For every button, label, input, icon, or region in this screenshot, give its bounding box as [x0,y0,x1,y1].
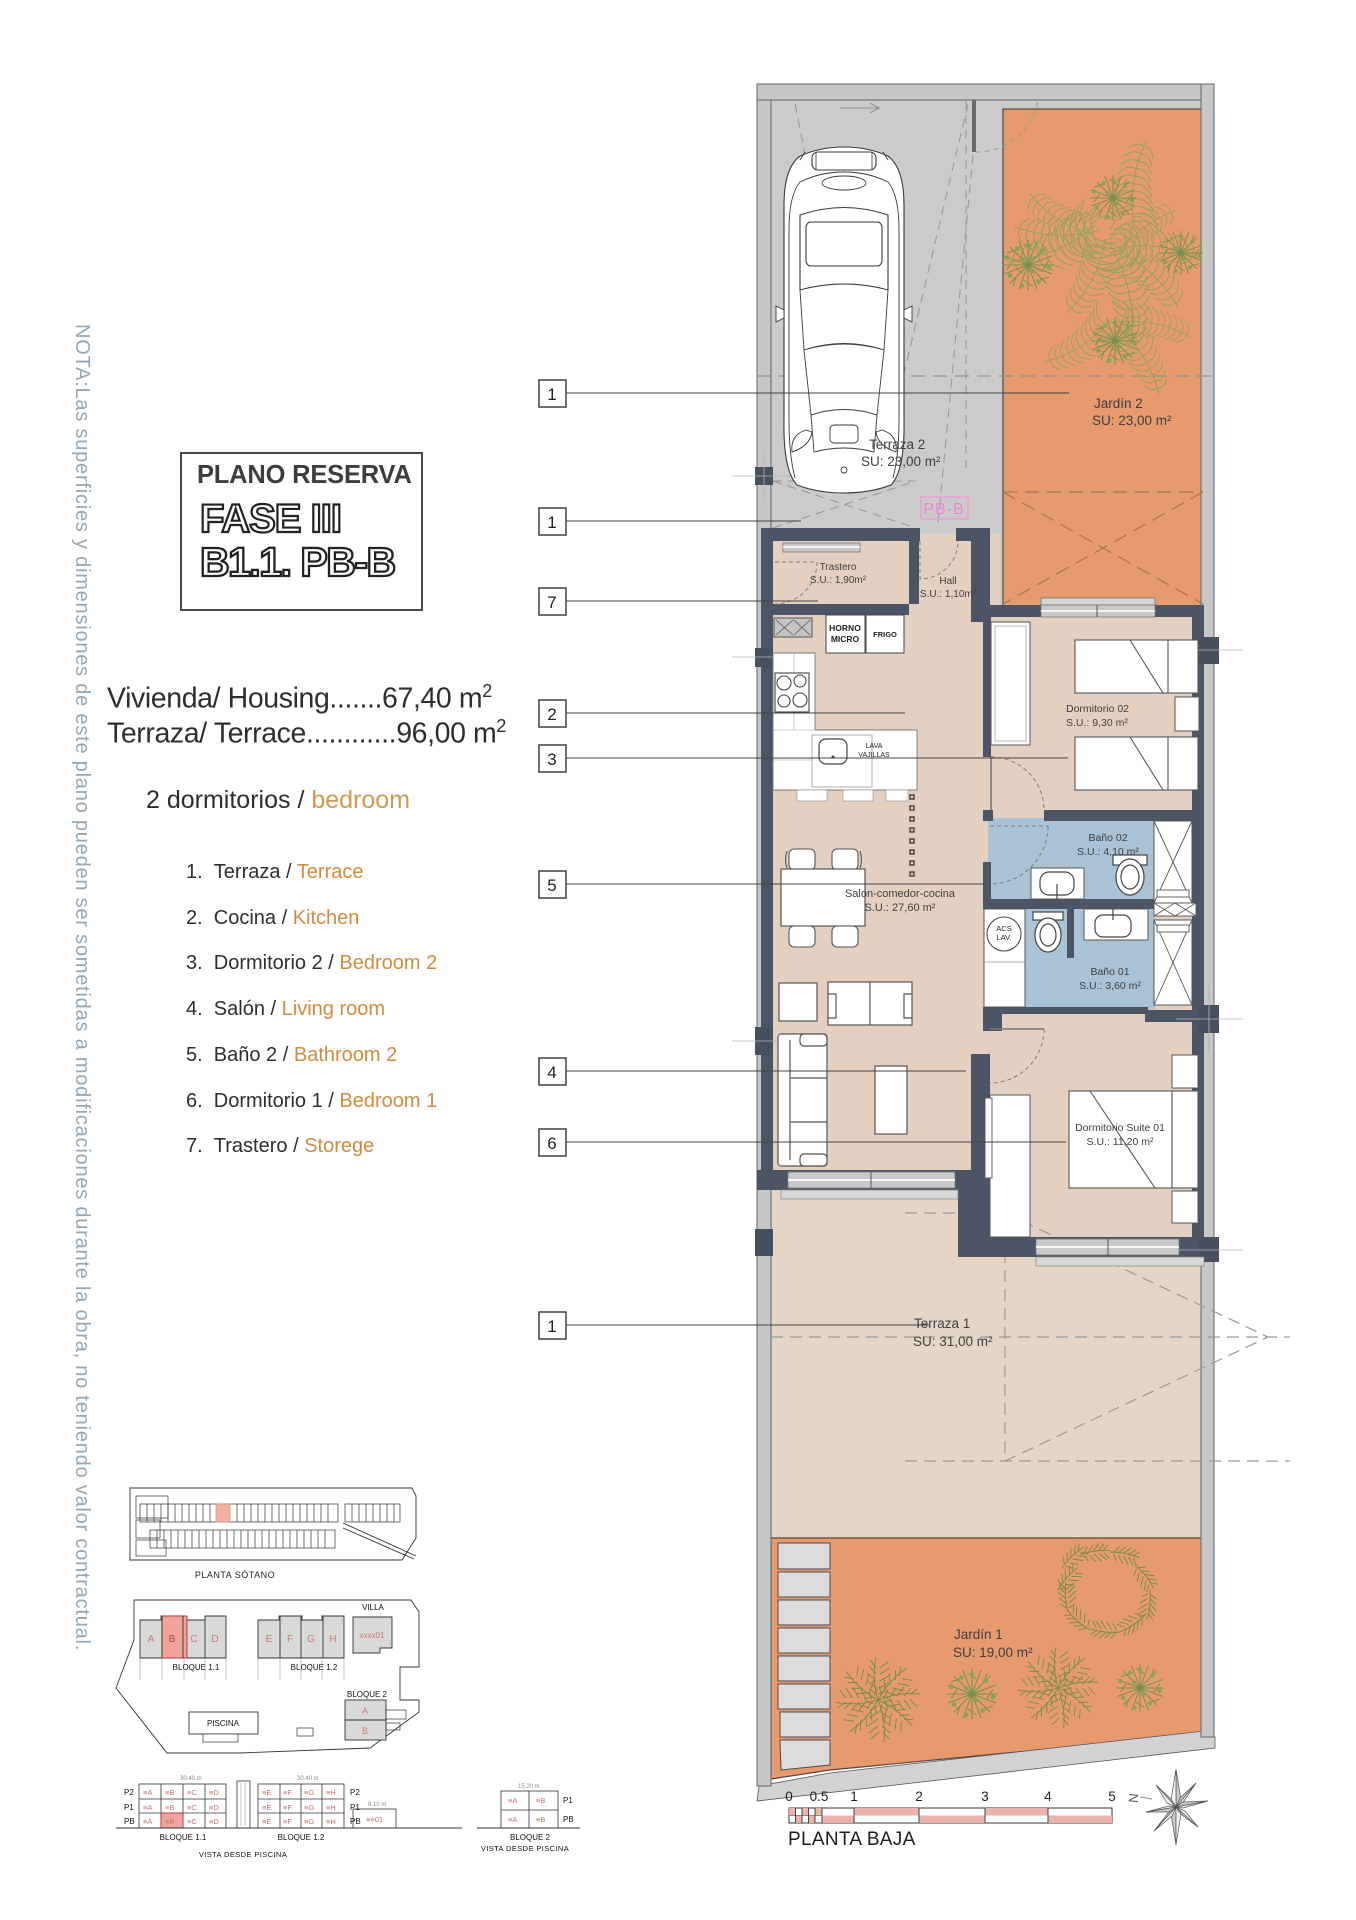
svg-text:≡D: ≡D [209,1788,219,1797]
svg-text:LAV.: LAV. [996,933,1011,942]
svg-text:0: 0 [785,1789,793,1804]
svg-text:S.U.: 1,90m²: S.U.: 1,90m² [810,575,867,586]
svg-text:E: E [266,1634,273,1645]
svg-text:2: 2 [547,705,556,724]
svg-text:Hall: Hall [939,576,956,587]
svg-text:P2: P2 [124,1788,134,1797]
svg-text:Dormitorio Suite 01: Dormitorio Suite 01 [1075,1122,1165,1134]
svg-text:≡E: ≡E [262,1817,271,1826]
svg-text:≡D: ≡D [209,1817,219,1826]
svg-text:Jardín 1: Jardín 1 [954,1627,1003,1642]
svg-text:≡H: ≡H [326,1803,336,1812]
svg-text:S.U.: 11,20 m²: S.U.: 11,20 m² [1087,1136,1154,1148]
svg-text:VISTA DESDE PISCINA: VISTA DESDE PISCINA [481,1844,569,1853]
svg-text:Terraza 1: Terraza 1 [914,1316,970,1331]
svg-text:≡E: ≡E [262,1803,271,1812]
svg-text:1: 1 [547,1317,556,1336]
svg-text:BLOQUE 2: BLOQUE 2 [347,1690,388,1699]
svg-text:Dormitorio 02: Dormitorio 02 [1066,703,1129,715]
svg-text:15.20 m: 15.20 m [518,1784,540,1790]
svg-text:HORNO: HORNO [829,623,861,633]
svg-text:S.U.: 27,60 m²: S.U.: 27,60 m² [865,902,936,914]
svg-text:0.5: 0.5 [810,1789,829,1804]
svg-text:≡B: ≡B [165,1788,174,1797]
svg-text:≡C: ≡C [187,1788,197,1797]
svg-text:VILLA: VILLA [362,1603,384,1612]
svg-text:≡A: ≡A [143,1788,152,1797]
svg-text:Baño 02: Baño 02 [1088,832,1127,844]
svg-text:≡F: ≡F [283,1817,292,1826]
svg-text:SU: 23,00 m²: SU: 23,00 m² [1092,413,1172,428]
svg-text:PB-B: PB-B [923,501,964,518]
svg-text:3: 3 [981,1789,989,1804]
svg-text:S.U.: 1,10m²: S.U.: 1,10m² [920,589,977,600]
svg-text:MICRO: MICRO [831,634,860,644]
svg-text:D: D [211,1634,218,1645]
svg-text:4: 4 [1044,1789,1052,1804]
svg-text:BLOQUE 1.2: BLOQUE 1.2 [291,1663,338,1672]
svg-text:3: 3 [547,750,556,769]
svg-text:BLOQUE 1.1: BLOQUE 1.1 [160,1833,207,1842]
svg-text:B: B [169,1634,176,1645]
svg-text:≡H: ≡H [326,1788,336,1797]
svg-text:ACS: ACS [996,924,1011,933]
svg-text:G: G [307,1634,315,1645]
svg-text:≡G: ≡G [304,1803,314,1812]
svg-text:2: 2 [915,1789,923,1804]
svg-text:SU: 19,00 m²: SU: 19,00 m² [953,1645,1033,1660]
svg-text:F: F [287,1634,293,1645]
svg-text:B: B [362,1726,368,1736]
svg-text:≡B: ≡B [536,1796,545,1805]
svg-text:S.U.: 3,60 m²: S.U.: 3,60 m² [1079,980,1141,992]
svg-text:A: A [148,1634,155,1645]
svg-text:Baño 01: Baño 01 [1090,966,1129,978]
svg-text:≡B: ≡B [165,1803,174,1812]
svg-text:A: A [362,1706,368,1716]
svg-text:C: C [190,1634,197,1645]
svg-text:≡≡01: ≡≡01 [366,1815,383,1824]
svg-text:≡G: ≡G [304,1817,314,1826]
svg-text:SU: 23,00 m²: SU: 23,00 m² [861,454,941,469]
svg-text:PB: PB [350,1817,361,1826]
svg-text:P1: P1 [350,1803,360,1812]
svg-text:≡A: ≡A [143,1817,152,1826]
svg-text:BLOQUE 1.2: BLOQUE 1.2 [278,1833,325,1842]
svg-text:VISTA DESDE PISCINA: VISTA DESDE PISCINA [199,1850,287,1859]
svg-text:≡E: ≡E [262,1788,271,1797]
svg-text:≡B: ≡B [165,1817,174,1826]
svg-text:Trastero: Trastero [820,562,857,573]
svg-text:SU: 31,00 m²: SU: 31,00 m² [913,1334,993,1349]
svg-text:Jardín 2: Jardín 2 [1094,396,1143,411]
svg-text:≡A: ≡A [143,1803,152,1812]
svg-text:Terraza 2: Terraza 2 [869,437,925,452]
svg-text:BLOQUE 2: BLOQUE 2 [510,1833,551,1842]
svg-text:PLANTA BAJA: PLANTA BAJA [788,1829,916,1850]
svg-text:30.40 m: 30.40 m [297,1776,319,1782]
svg-text:6: 6 [547,1134,556,1153]
svg-text:≡D: ≡D [209,1803,219,1812]
svg-text:≡C: ≡C [187,1817,197,1826]
svg-text:P2: P2 [350,1788,360,1797]
svg-text:PISCINA: PISCINA [207,1719,240,1728]
svg-text:5: 5 [547,876,556,895]
svg-text:1: 1 [547,385,556,404]
svg-text:LAVA: LAVA [866,743,883,750]
svg-text:4: 4 [547,1063,556,1082]
svg-text:FRIGO: FRIGO [873,630,897,639]
svg-text:≡F: ≡F [283,1803,292,1812]
svg-text:PB: PB [124,1817,135,1826]
svg-text:H: H [329,1634,336,1645]
svg-text:S.U.: 9,30 m²: S.U.: 9,30 m² [1066,717,1128,729]
svg-text:5: 5 [1108,1789,1116,1804]
svg-text:Salon-comedor-cocina: Salon-comedor-cocina [845,888,956,900]
svg-text:≡A: ≡A [508,1796,517,1805]
svg-text:1: 1 [850,1789,858,1804]
svg-text:BLOQUE 1.1: BLOQUE 1.1 [173,1663,220,1672]
svg-text:≡C: ≡C [187,1803,197,1812]
svg-text:≡A: ≡A [508,1815,517,1824]
svg-text:P1: P1 [563,1796,573,1805]
svg-text:≡H: ≡H [326,1817,336,1826]
svg-text:7: 7 [547,593,556,612]
svg-text:30.40 m: 30.40 m [180,1776,202,1782]
svg-text:9.10 m: 9.10 m [368,1802,386,1808]
svg-text:PLANTA SÓTANO: PLANTA SÓTANO [195,1570,275,1580]
svg-text:P1: P1 [124,1803,134,1812]
svg-text:xxxx01: xxxx01 [360,1631,385,1640]
svg-text:≡G: ≡G [304,1788,314,1797]
svg-text:PB: PB [563,1815,574,1824]
svg-text:1: 1 [547,513,556,532]
svg-text:N: N [1126,1793,1142,1804]
svg-text:S.U.: 4,10 m²: S.U.: 4,10 m² [1077,846,1139,858]
svg-text:≡B: ≡B [536,1815,545,1824]
svg-text:≡F: ≡F [283,1788,292,1797]
